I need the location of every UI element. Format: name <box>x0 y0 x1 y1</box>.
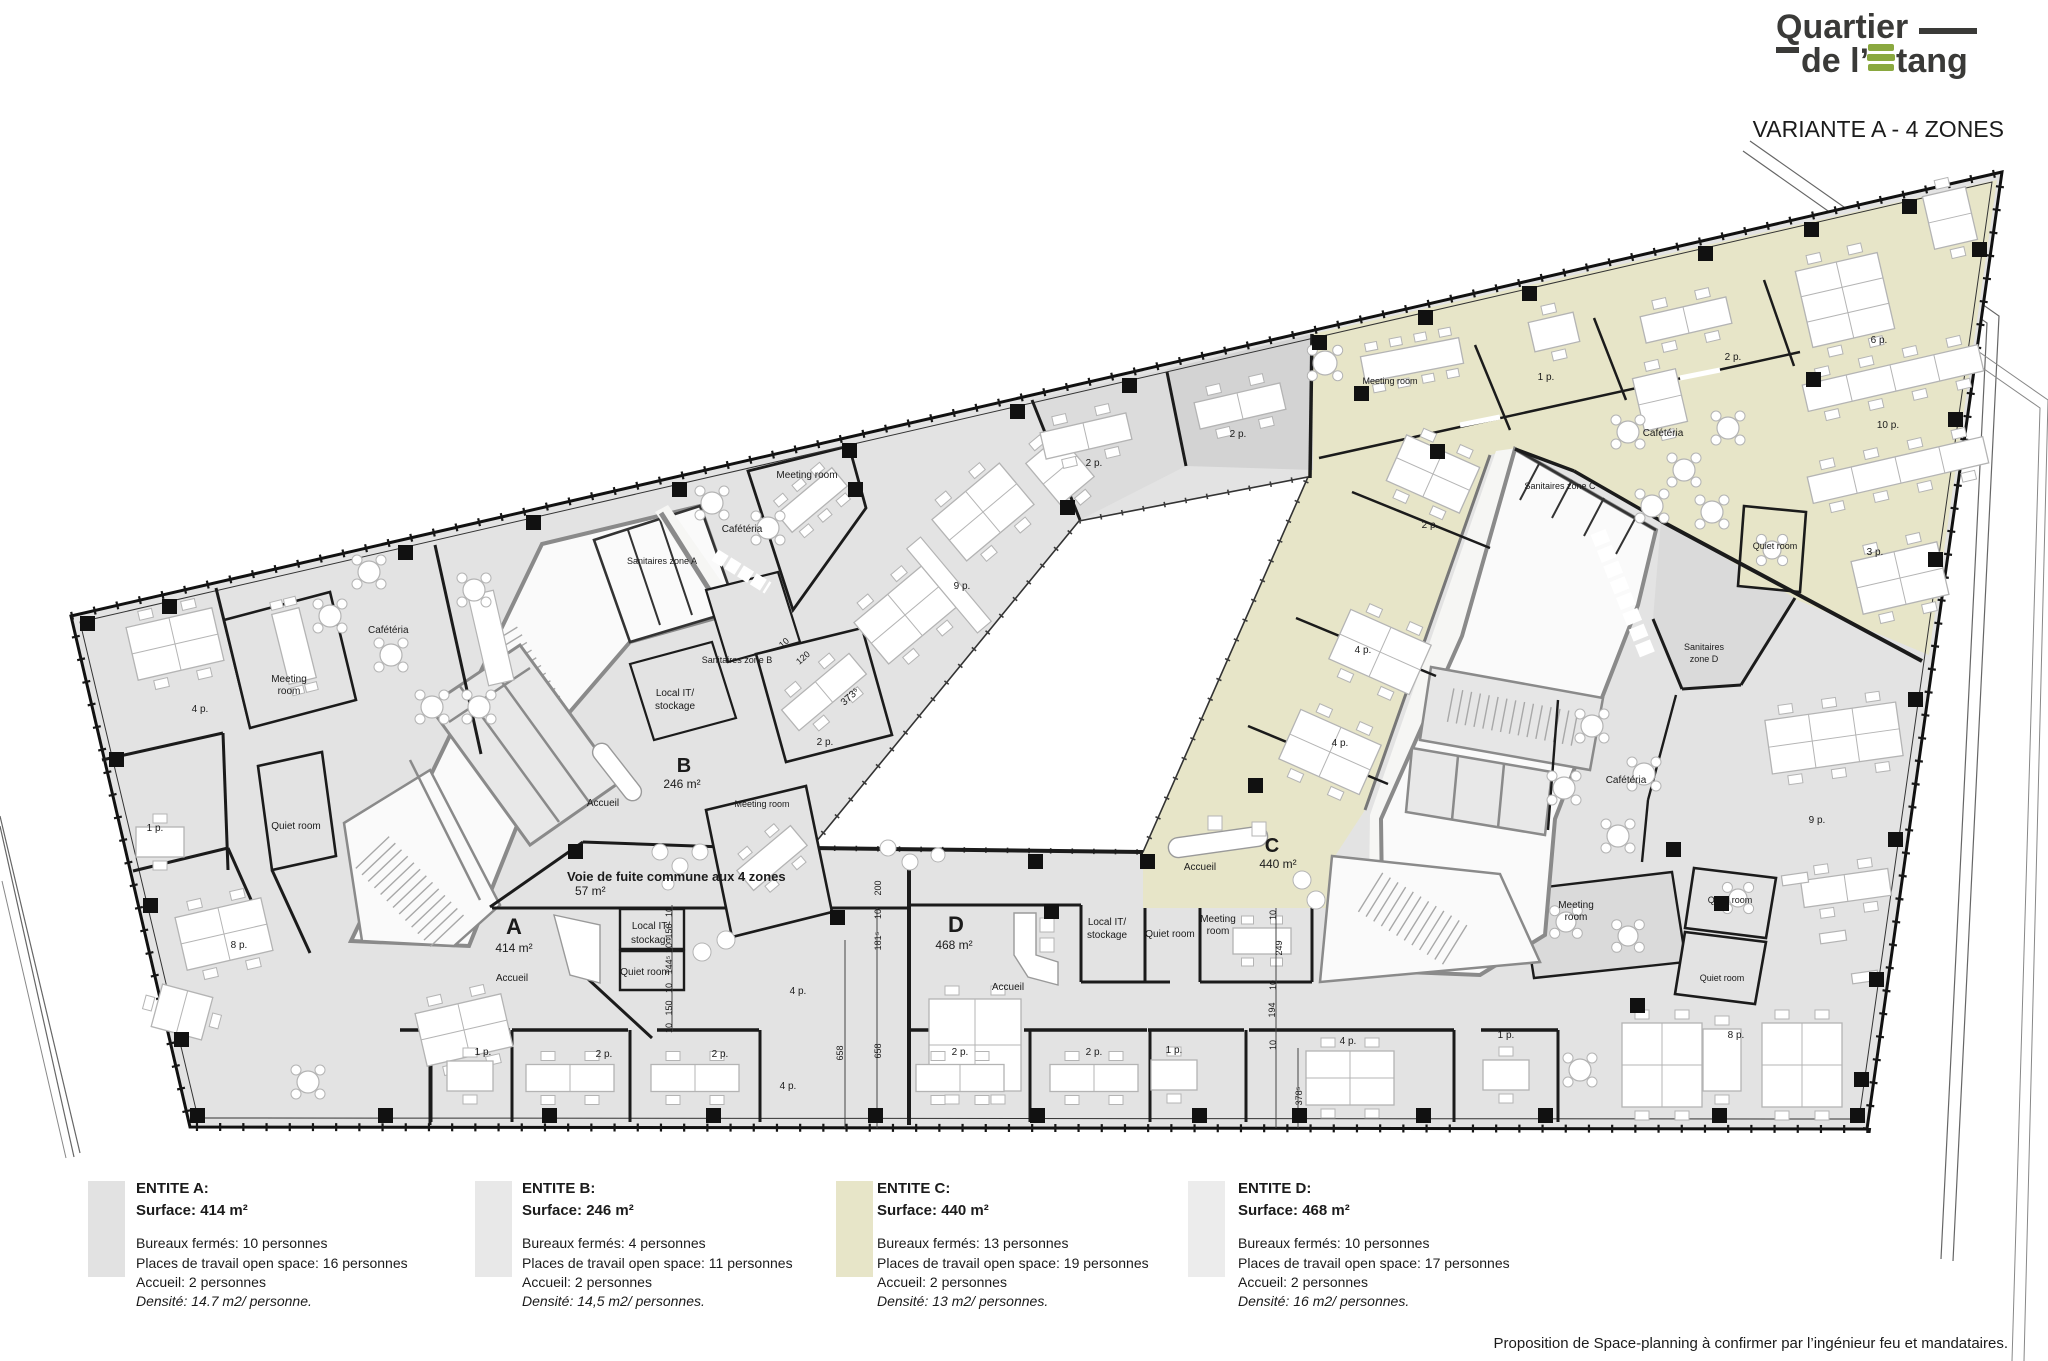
svg-text:2 p.: 2 p. <box>712 1049 729 1060</box>
svg-text:Cafétéria: Cafétéria <box>1606 775 1647 786</box>
svg-text:ENTITE C:: ENTITE C: <box>877 1180 950 1197</box>
svg-text:Quiet room: Quiet room <box>1753 541 1798 551</box>
svg-text:Sanitaires zone B: Sanitaires zone B <box>702 655 773 665</box>
svg-text:200: 200 <box>873 880 883 895</box>
svg-text:2 p.: 2 p. <box>1086 458 1103 469</box>
svg-text:Meeting room: Meeting room <box>1362 376 1417 386</box>
svg-text:Places de travail open space:: Places de travail open space: 11 personn… <box>522 1255 793 1271</box>
svg-text:4 p.: 4 p. <box>192 704 209 715</box>
svg-text:Accueil: Accueil <box>587 798 619 809</box>
svg-text:Meeting: Meeting <box>1200 914 1236 925</box>
svg-text:Accueil: Accueil <box>1184 862 1216 873</box>
svg-text:440 m²: 440 m² <box>1259 857 1296 871</box>
svg-text:zone D: zone D <box>1690 654 1719 664</box>
svg-text:10: 10 <box>1268 980 1278 990</box>
svg-text:Local IT/: Local IT/ <box>656 688 695 699</box>
svg-text:A: A <box>506 914 522 939</box>
svg-text:Accueil: Accueil <box>496 973 528 984</box>
svg-text:1 p.: 1 p. <box>147 823 164 834</box>
svg-text:2 p.: 2 p. <box>817 737 834 748</box>
svg-text:Sanitaires: Sanitaires <box>1684 642 1725 652</box>
svg-text:1 p.: 1 p. <box>1498 1030 1515 1041</box>
svg-text:Bureaux fermés: 10 personnes: Bureaux fermés: 10 personnes <box>136 1235 327 1251</box>
svg-text:10: 10 <box>664 907 674 917</box>
svg-text:Quiet room: Quiet room <box>1700 973 1745 983</box>
svg-text:181⁵: 181⁵ <box>873 931 883 950</box>
svg-text:tang: tang <box>1896 42 1968 80</box>
svg-text:room: room <box>1207 926 1230 937</box>
svg-text:8 p.: 8 p. <box>231 940 248 951</box>
svg-text:246 m²: 246 m² <box>663 777 700 791</box>
svg-text:1 p.: 1 p. <box>1538 372 1555 383</box>
svg-text:B: B <box>677 755 691 777</box>
svg-text:10: 10 <box>664 1023 674 1033</box>
svg-text:Densité: 14.7 m2/ personne.: Densité: 14.7 m2/ personne. <box>136 1293 312 1309</box>
svg-text:57 m²: 57 m² <box>575 884 606 898</box>
svg-text:Places de travail open space:: Places de travail open space: 19 personn… <box>877 1255 1149 1271</box>
svg-text:VARIANTE A - 4 ZONES: VARIANTE A - 4 ZONES <box>1753 116 2004 142</box>
svg-text:Meeting room: Meeting room <box>734 799 789 809</box>
svg-text:4 p.: 4 p. <box>780 1081 797 1092</box>
svg-text:2 p.: 2 p. <box>596 1049 613 1060</box>
svg-text:Surface: 440 m²: Surface: 440 m² <box>877 1202 989 1219</box>
svg-text:2 p.: 2 p. <box>1725 352 1742 363</box>
svg-text:Accueil: 2 personnes: Accueil: 2 personnes <box>522 1274 652 1290</box>
svg-text:Densité: 13 m2/ personnes.: Densité: 13 m2/ personnes. <box>877 1293 1048 1309</box>
svg-text:Cafétéria: Cafétéria <box>368 625 409 636</box>
svg-text:Bureaux fermés: 13 personnes: Bureaux fermés: 13 personnes <box>877 1235 1068 1251</box>
svg-text:Meeting: Meeting <box>271 674 307 685</box>
svg-text:Places de travail open space:: Places de travail open space: 17 personn… <box>1238 1255 1510 1271</box>
svg-text:414 m²: 414 m² <box>495 941 532 955</box>
svg-text:468 m²: 468 m² <box>935 938 972 952</box>
svg-text:658: 658 <box>835 1045 845 1060</box>
svg-text:Cafétéria: Cafétéria <box>722 524 763 535</box>
svg-text:658: 658 <box>873 1043 883 1058</box>
svg-text:Meeting: Meeting <box>1558 900 1594 911</box>
svg-text:249: 249 <box>1274 940 1284 955</box>
svg-text:C: C <box>1265 835 1279 857</box>
svg-text:4 p.: 4 p. <box>790 986 807 997</box>
svg-text:150: 150 <box>664 1000 674 1015</box>
svg-text:2 p.: 2 p. <box>1230 429 1247 440</box>
svg-text:4 p.: 4 p. <box>1332 738 1349 749</box>
svg-text:Sanitaires zone C: Sanitaires zone C <box>1524 481 1596 491</box>
svg-text:Surface: 468 m²: Surface: 468 m² <box>1238 1202 1350 1219</box>
svg-text:2 p.: 2 p. <box>952 1047 969 1058</box>
svg-text:4 p.: 4 p. <box>1340 1036 1357 1047</box>
svg-text:378⁵: 378⁵ <box>1294 1086 1304 1105</box>
svg-text:Quiet room: Quiet room <box>1145 929 1194 940</box>
svg-text:Quiet room: Quiet room <box>620 967 669 978</box>
svg-text:9 p.: 9 p. <box>954 581 971 592</box>
svg-text:D: D <box>948 912 964 937</box>
svg-text:ENTITE A:: ENTITE A: <box>136 1180 209 1197</box>
svg-text:Accueil: 2 personnes: Accueil: 2 personnes <box>1238 1274 1368 1290</box>
svg-text:Local IT/: Local IT/ <box>1088 917 1127 928</box>
svg-text:194: 194 <box>1267 1002 1277 1017</box>
svg-text:2 p.: 2 p. <box>1422 520 1439 531</box>
svg-text:10: 10 <box>1268 910 1278 920</box>
svg-text:room: room <box>278 686 301 697</box>
svg-text:10: 10 <box>664 983 674 993</box>
svg-text:Accueil: Accueil <box>992 982 1024 993</box>
svg-text:3 p.: 3 p. <box>1867 547 1884 558</box>
svg-text:150: 150 <box>664 923 674 938</box>
svg-text:Accueil: 2 personnes: Accueil: 2 personnes <box>877 1274 1007 1290</box>
svg-text:Accueil: 2 personnes: Accueil: 2 personnes <box>136 1274 266 1290</box>
svg-text:10 p.: 10 p. <box>1877 420 1899 431</box>
svg-text:Sanitaires zone A: Sanitaires zone A <box>627 556 697 566</box>
svg-text:de l’: de l’ <box>1801 42 1869 80</box>
svg-text:1 p.: 1 p. <box>475 1047 492 1058</box>
svg-text:Quartier: Quartier <box>1776 8 1908 46</box>
svg-text:2 p.: 2 p. <box>1086 1047 1103 1058</box>
svg-text:Densité: 16 m2/ personnes.: Densité: 16 m2/ personnes. <box>1238 1293 1409 1309</box>
svg-text:9 p.: 9 p. <box>1809 815 1826 826</box>
svg-text:10: 10 <box>873 909 883 919</box>
svg-text:4 p.: 4 p. <box>1355 645 1372 656</box>
svg-text:8 p.: 8 p. <box>1728 1030 1745 1041</box>
svg-text:Bureaux fermés: 10 personnes: Bureaux fermés: 10 personnes <box>1238 1235 1429 1251</box>
svg-text:Cafétéria: Cafétéria <box>1643 428 1684 439</box>
svg-text:144⁵: 144⁵ <box>664 955 674 974</box>
svg-text:Voie de fuite commune aux 4 zo: Voie de fuite commune aux 4 zones <box>567 869 786 884</box>
svg-text:room: room <box>1565 912 1588 923</box>
svg-text:ENTITE B:: ENTITE B: <box>522 1180 595 1197</box>
svg-text:ENTITE D:: ENTITE D: <box>1238 1180 1311 1197</box>
svg-text:Meeting room: Meeting room <box>776 470 837 481</box>
svg-text:Surface: 414 m²: Surface: 414 m² <box>136 1202 248 1219</box>
svg-text:Densité: 14,5 m2/ personnes.: Densité: 14,5 m2/ personnes. <box>522 1293 705 1309</box>
svg-text:Quiet room: Quiet room <box>271 821 320 832</box>
svg-text:10: 10 <box>664 943 674 953</box>
svg-text:Places de travail open space:: Places de travail open space: 16 personn… <box>136 1255 408 1271</box>
svg-text:1 p.: 1 p. <box>1166 1045 1183 1056</box>
svg-text:Surface: 246 m²: Surface: 246 m² <box>522 1202 634 1219</box>
svg-text:Bureaux fermés: 4 personnes: Bureaux fermés: 4 personnes <box>522 1235 706 1251</box>
svg-text:stockage: stockage <box>1087 930 1127 941</box>
svg-text:stockage: stockage <box>655 701 695 712</box>
svg-text:6 p.: 6 p. <box>1871 335 1888 346</box>
svg-text:10: 10 <box>1268 1040 1278 1050</box>
svg-text:Proposition de Space-planning: Proposition de Space-planning à confirme… <box>1494 1335 2008 1352</box>
